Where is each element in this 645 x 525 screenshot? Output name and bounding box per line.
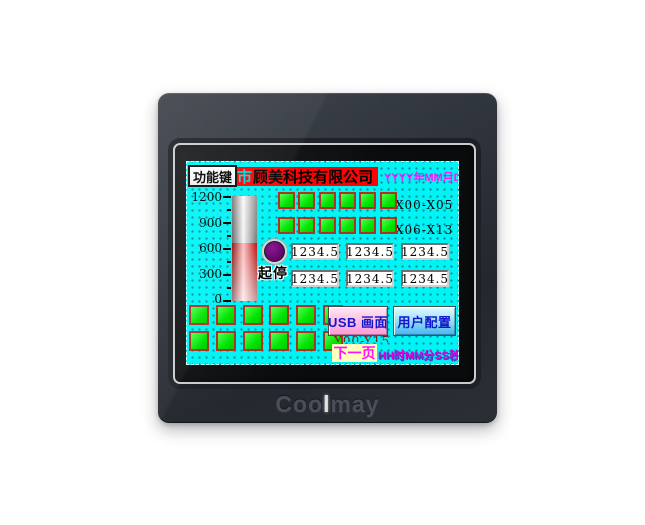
usb-screen-button[interactable]: USB 画面 — [328, 306, 388, 336]
company-banner-prefix: 市 — [237, 167, 252, 186]
hmi-device: 功能键 市 顾美科技有限公司 YYYY年MM月DD日 X00-X05 X06-X… — [158, 93, 497, 423]
numeric-display[interactable]: 1234.5 — [291, 243, 339, 260]
bar-gauge-empty — [232, 196, 257, 243]
brand-logo-highlight: l — [323, 391, 330, 417]
input-row2-label: X06-X13 — [395, 223, 457, 237]
output-indicator-lamp — [269, 331, 289, 351]
screen-glass: 功能键 市 顾美科技有限公司 YYYY年MM月DD日 X00-X05 X06-X… — [173, 143, 476, 384]
gauge-tick-mark — [223, 222, 231, 224]
gauge-tick-label: 600 — [189, 242, 222, 255]
company-banner: 市 顾美科技有限公司 — [237, 167, 378, 186]
numeric-display[interactable]: 1234.5 — [401, 270, 449, 287]
bar-gauge — [232, 196, 257, 301]
gauge-tick-mark — [223, 248, 231, 250]
output-indicator-lamp — [296, 331, 316, 351]
numeric-display[interactable]: 1234.5 — [346, 243, 394, 260]
brand-logo-post: may — [331, 391, 380, 417]
input-indicator-lamp — [298, 192, 315, 209]
company-banner-name: 顾美科技有限公司 — [253, 167, 373, 186]
gauge-tick-mark — [223, 196, 231, 198]
output-indicator-lamp — [189, 331, 209, 351]
gauge-tick-label: 300 — [189, 268, 222, 281]
input-indicator-lamp — [278, 192, 295, 209]
input-indicator-lamp — [380, 192, 397, 209]
numeric-display[interactable]: 1234.5 — [291, 270, 339, 287]
bar-gauge-fill — [232, 243, 257, 301]
input-indicator-lamp — [339, 192, 356, 209]
user-config-button[interactable]: 用户配置 — [393, 306, 456, 336]
input-indicator-lamp — [359, 217, 376, 234]
gauge-tick-label: 1200 — [189, 191, 222, 204]
next-page-button[interactable]: 下一页 — [332, 344, 377, 362]
output-indicator-lamp — [269, 305, 289, 325]
gauge-tick-mark — [227, 261, 231, 263]
brand-logo-pre: Coo — [275, 391, 323, 417]
date-display: YYYY年MM月DD日 — [384, 169, 459, 185]
page: 功能键 市 顾美科技有限公司 YYYY年MM月DD日 X00-X05 X06-X… — [0, 0, 645, 525]
output-indicator-lamp — [296, 305, 316, 325]
input-indicator-lamp — [339, 217, 356, 234]
output-indicator-lamp — [216, 305, 236, 325]
start-stop-label: 起停 — [258, 263, 288, 283]
output-indicator-lamp — [189, 305, 209, 325]
input-indicator-lamp — [319, 192, 336, 209]
gauge-tick-mark — [223, 274, 231, 276]
input-indicator-lamp — [298, 217, 315, 234]
gauge-tick-mark — [227, 287, 231, 289]
input-indicator-lamp — [319, 217, 336, 234]
gauge-tick-label: 900 — [189, 217, 222, 230]
clipped-output-label: Y00-Y15 — [334, 335, 394, 342]
input-indicator-lamp — [278, 217, 295, 234]
gauge-tick-mark — [223, 300, 231, 302]
numeric-display[interactable]: 1234.5 — [401, 243, 449, 260]
numeric-display[interactable]: 1234.5 — [346, 270, 394, 287]
output-indicator-lamp — [216, 331, 236, 351]
function-key-button[interactable]: 功能键 — [188, 165, 237, 187]
gauge-tick-mark — [227, 235, 231, 237]
input-row1-label: X00-X05 — [395, 198, 457, 212]
gauge-tick-mark — [227, 209, 231, 211]
input-indicator-lamp — [380, 217, 397, 234]
time-display: HH时MM分SS秒 — [378, 347, 459, 363]
output-indicator-lamp — [243, 305, 263, 325]
brand-logo: Coolmay — [158, 391, 497, 418]
output-indicator-lamp — [243, 331, 263, 351]
input-indicator-lamp — [359, 192, 376, 209]
display: 功能键 市 顾美科技有限公司 YYYY年MM月DD日 X00-X05 X06-X… — [186, 161, 459, 365]
start-stop-button[interactable] — [264, 241, 285, 262]
